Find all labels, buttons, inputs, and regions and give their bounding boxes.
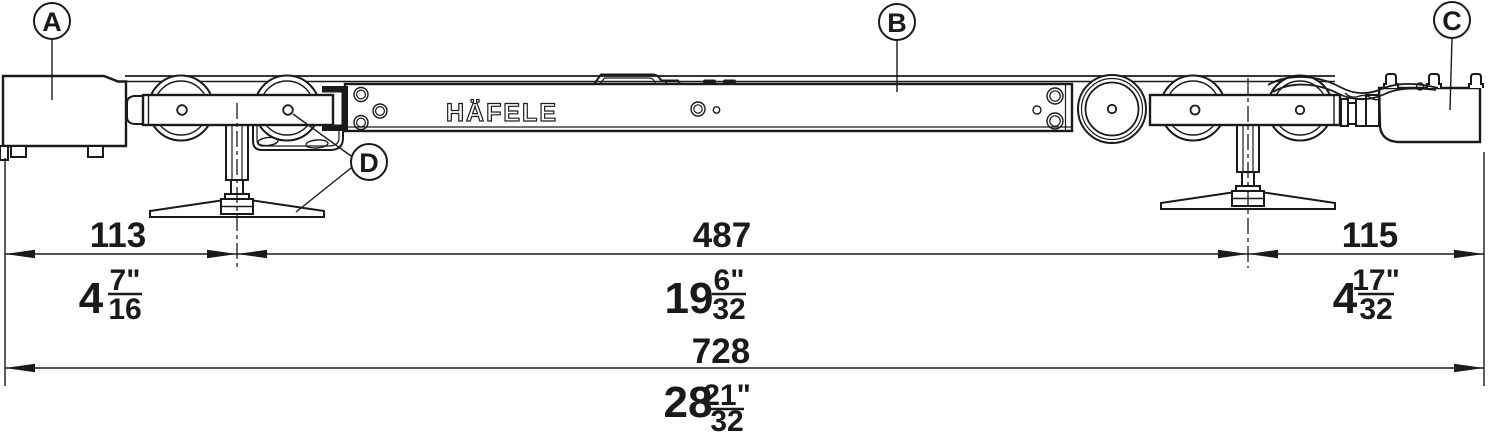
right-trolley-bar	[1150, 95, 1340, 125]
dim-right-inch: 4 17" 32	[1333, 264, 1400, 326]
callout-d-label: D	[359, 148, 379, 178]
technical-drawing-canvas: HÄFELE	[0, 0, 1488, 432]
dim-right-mm: 115	[1342, 216, 1398, 255]
svg-text:4: 4	[79, 274, 104, 323]
svg-text:32: 32	[1359, 293, 1392, 326]
dim-center-mm: 487	[693, 216, 751, 255]
callout-a-label: A	[42, 7, 62, 37]
dim-left-inch: 4 7" 16	[79, 264, 142, 326]
big-roller	[1078, 75, 1146, 143]
svg-text:32: 32	[712, 293, 745, 326]
brand-text: HÄFELE	[446, 99, 558, 127]
callout-b-label: B	[887, 8, 907, 38]
callout-c-label: C	[1442, 6, 1462, 36]
dim-overall-inch: 28 21" 32	[664, 378, 751, 432]
sliding-door-fitting-diagram: HÄFELE	[0, 0, 1488, 432]
svg-text:16: 16	[108, 293, 141, 326]
dim-center-inch: 19 6" 32	[665, 264, 746, 326]
damper-housing	[0, 76, 126, 160]
damper-rod-connector	[127, 96, 144, 124]
dim-left-mm: 113	[90, 216, 146, 255]
dim-overall-mm: 728	[692, 332, 750, 371]
svg-text:32: 32	[710, 405, 743, 432]
leader-d-lower	[296, 168, 351, 212]
svg-text:19: 19	[665, 274, 714, 323]
rail-profile: HÄFELE	[345, 84, 1072, 131]
left-trolley-bar	[143, 95, 333, 125]
